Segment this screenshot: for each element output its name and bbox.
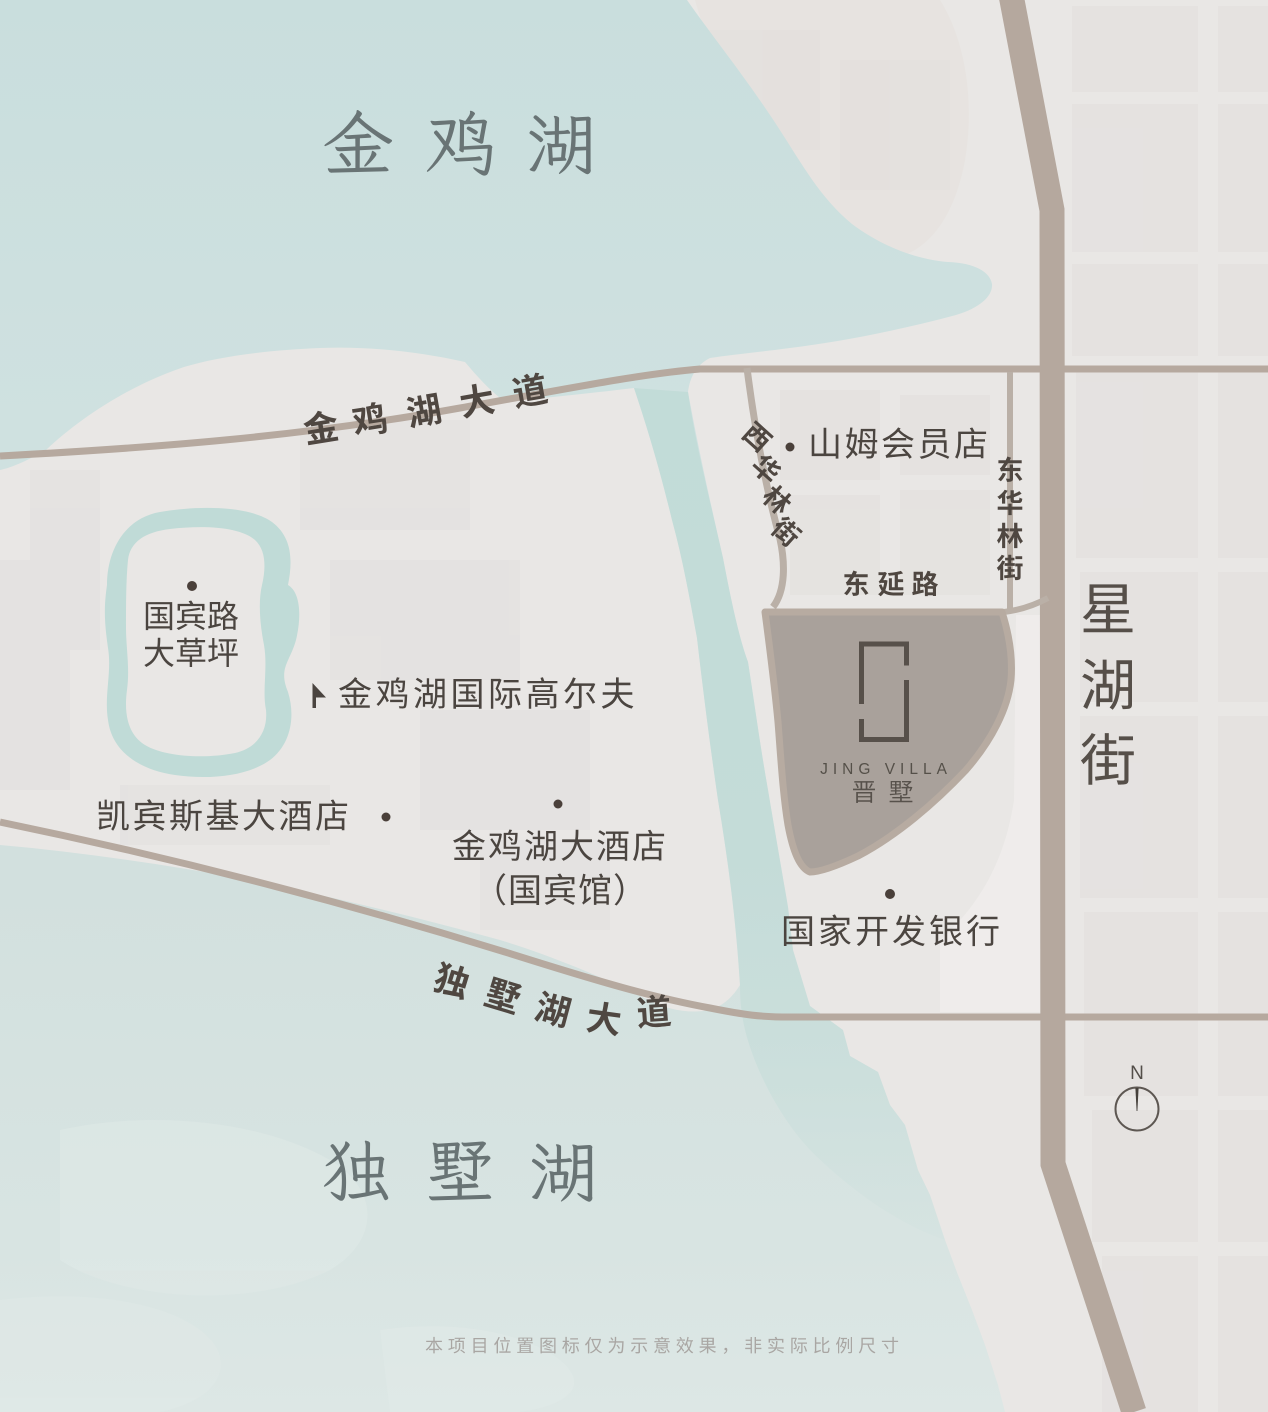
svg-text:N: N xyxy=(1130,1063,1144,1084)
svg-text:JING VILLA: JING VILLA xyxy=(820,761,952,778)
